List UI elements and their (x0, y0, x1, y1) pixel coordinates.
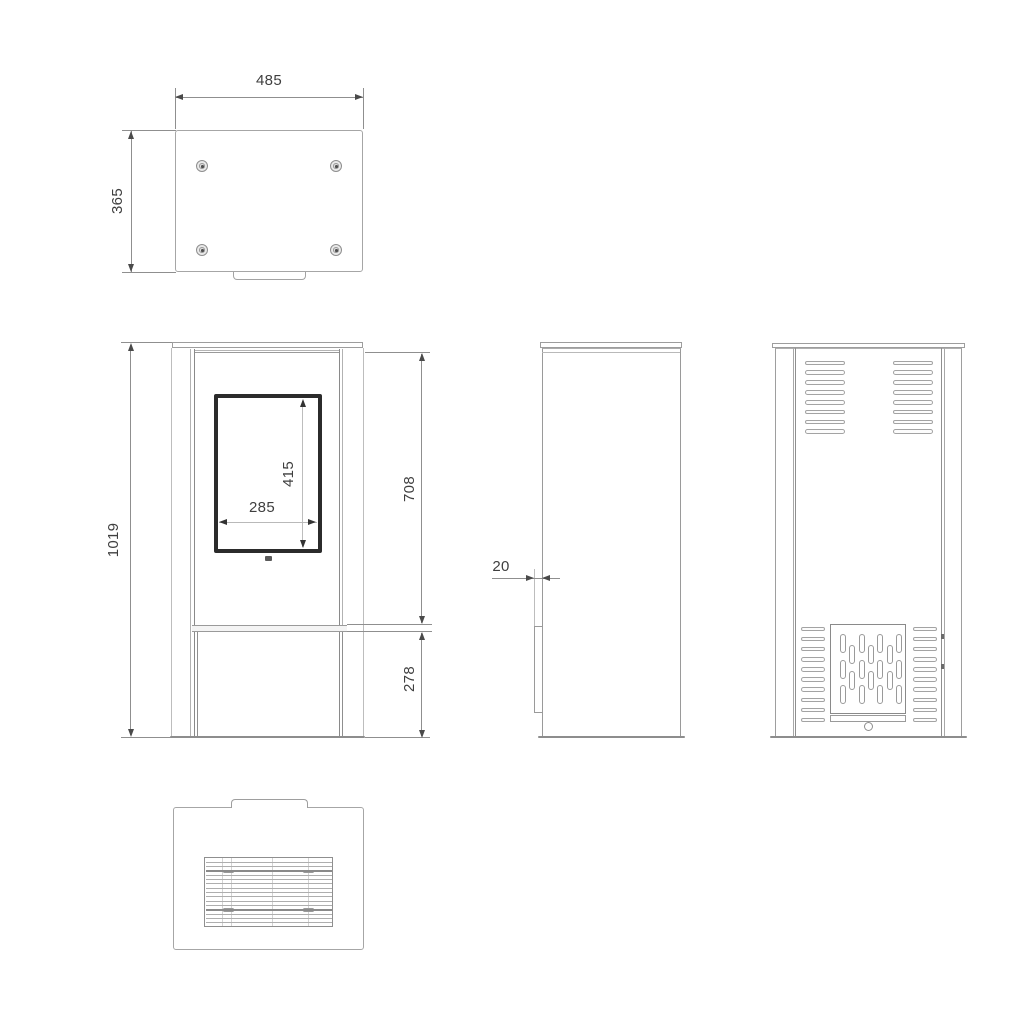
screw (330, 244, 342, 256)
back-top-vent-slot (893, 429, 933, 434)
dimension-line (219, 522, 317, 523)
dim-upper-section-label: 708 (402, 459, 418, 519)
arrowhead (419, 616, 425, 624)
front-body-top-line (195, 350, 339, 353)
dim-top-depth-label: 365 (110, 171, 126, 231)
back-top-vent-slot (805, 370, 845, 375)
bottom-grille-slat (206, 922, 332, 923)
back-side-vent-slot (801, 698, 826, 703)
back-top-vent-slot (893, 361, 933, 366)
back-side-vent-slot (913, 637, 938, 642)
rail-fastener (941, 634, 944, 639)
back-outlet-pill-slot (849, 645, 855, 664)
screw-center (335, 165, 338, 168)
arrowhead (419, 353, 425, 361)
back-top-vent-slot (805, 429, 845, 434)
back-side-vent-slot (913, 627, 938, 632)
bottom-grille-slat (206, 866, 332, 867)
screw-center (335, 249, 338, 252)
back-outlet-pill-slot (840, 660, 846, 679)
back-side-vent-slot (913, 677, 938, 682)
rail-fastener (941, 664, 944, 669)
front-left-rail (190, 349, 195, 736)
back-top-vent-slot (893, 420, 933, 425)
back-outlet-pill-slot (896, 660, 902, 679)
bottom-grille-slat (206, 870, 332, 872)
dimension-line (130, 345, 131, 735)
arrowhead (419, 730, 425, 738)
back-side-vent-slot (801, 718, 826, 723)
back-top-vent-slot (805, 400, 845, 405)
back-right-rail (941, 348, 945, 736)
back-outlet-pill-slot (859, 634, 865, 653)
back-top-vent-slot (893, 410, 933, 415)
back-side-vent-slot (913, 657, 938, 662)
back-outlet-pill-slot (840, 685, 846, 704)
door-handle (265, 556, 272, 561)
back-side-vent-slot (913, 647, 938, 652)
door-glass-frame (214, 394, 322, 553)
front-outer-edge (171, 348, 172, 736)
back-outlet-pill-slot (887, 645, 893, 664)
side-top-plate (540, 342, 682, 348)
dimension-line (421, 633, 422, 736)
side-base-line (538, 736, 685, 739)
back-left-rail (793, 348, 797, 736)
side-body-top-line (542, 352, 680, 353)
back-outlet-pill-slot (877, 685, 883, 704)
arrowhead (175, 94, 183, 100)
back-side-vent-slot (801, 657, 826, 662)
arrowhead (219, 519, 227, 525)
dimension-line (421, 354, 422, 623)
back-outlet-pill-slot (877, 660, 883, 679)
back-outlet-pill-slot (840, 634, 846, 653)
extension-line (347, 624, 432, 625)
back-outlet-pill-slot (896, 634, 902, 653)
bottom-grille-slat (206, 909, 332, 911)
arrowhead (355, 94, 363, 100)
arrowhead (526, 575, 534, 581)
bottom-grille-slat (206, 875, 332, 876)
front-top-plate (172, 342, 363, 348)
front-divider-band (192, 625, 347, 632)
bottom-grille-slat (206, 918, 332, 919)
bottom-grille-slat (206, 888, 332, 889)
back-outlet-pill-slot (859, 685, 865, 704)
back-outlet-pill-slot (868, 671, 874, 690)
back-side-vent-slot (801, 687, 826, 692)
arrowhead (300, 540, 306, 548)
back-outlet-pill-slot (849, 671, 855, 690)
dimension-line (131, 131, 132, 272)
top-view-flue-tab (233, 272, 306, 280)
dim-panel-thickness-label: 20 (483, 559, 519, 575)
back-side-vent-slot (913, 708, 938, 713)
arrowhead (542, 575, 550, 581)
back-outlet-pill-slot (896, 685, 902, 704)
extension-line (363, 88, 364, 129)
screw-center (201, 249, 204, 252)
back-outlet-pill-slot (887, 671, 893, 690)
bottom-grille-slat (206, 914, 332, 915)
back-top-vent-slot (893, 400, 933, 405)
back-top-vent-slot (805, 390, 845, 395)
bottom-grille-slat (206, 892, 332, 893)
arrowhead (419, 632, 425, 640)
dim-glass-height-label: 415 (281, 444, 297, 504)
dim-glass-width-label: 285 (238, 500, 286, 516)
bottom-grille-slat (206, 879, 332, 880)
back-side-vent-slot (801, 677, 826, 682)
bottom-grille-slat (206, 883, 332, 884)
back-side-vent-slot (801, 647, 826, 652)
back-knob (864, 722, 873, 731)
back-outlet-pill-slot (868, 645, 874, 664)
screw (196, 244, 208, 256)
side-body (542, 348, 681, 736)
screw (196, 160, 208, 172)
arrowhead (128, 131, 134, 139)
dimension-line (175, 97, 363, 98)
back-top-vent-slot (893, 380, 933, 385)
side-front-panel (534, 626, 543, 714)
bottom-view-flue-tab (231, 799, 308, 808)
back-side-vent-slot (913, 698, 938, 703)
dim-base-section-label: 278 (402, 649, 418, 709)
back-outlet-pill-slot (859, 660, 865, 679)
back-base-line (770, 736, 967, 739)
back-top-vent-slot (893, 390, 933, 395)
bottom-grille-slat (206, 901, 332, 902)
back-side-vent-slot (801, 667, 826, 672)
back-outlet-pill-slot (877, 634, 883, 653)
back-side-vent-slot (913, 667, 938, 672)
arrowhead (308, 519, 316, 525)
base-panel-edge (197, 632, 198, 736)
front-base-line (170, 736, 365, 739)
arrowhead (300, 399, 306, 407)
back-side-vent-slot (913, 718, 938, 723)
arrowhead (128, 264, 134, 272)
back-outlet-bottom-bar (830, 715, 906, 722)
back-top-vent-slot (805, 380, 845, 385)
back-top-vent-slot (805, 361, 845, 366)
arrowhead (128, 343, 134, 351)
screw (330, 160, 342, 172)
back-top-vent-slot (805, 420, 845, 425)
stove-technical-drawing: 485 365 1019 (0, 0, 1030, 1030)
back-side-vent-slot (913, 687, 938, 692)
bottom-grille-slat (206, 862, 332, 863)
dim-overall-height-label: 1019 (106, 510, 122, 570)
arrowhead (128, 729, 134, 737)
front-outer-edge (363, 348, 364, 736)
back-side-vent-slot (801, 708, 826, 713)
bottom-grille-slat (206, 905, 332, 906)
dimension-line (302, 401, 303, 547)
dim-top-width-label: 485 (245, 73, 293, 89)
back-side-vent-slot (801, 637, 826, 642)
bottom-grille-slat (206, 896, 332, 897)
base-panel-edge (342, 632, 343, 736)
back-top-vent-slot (805, 410, 845, 415)
back-side-vent-slot (801, 627, 826, 632)
screw-center (201, 165, 204, 168)
back-top-vent-slot (893, 370, 933, 375)
